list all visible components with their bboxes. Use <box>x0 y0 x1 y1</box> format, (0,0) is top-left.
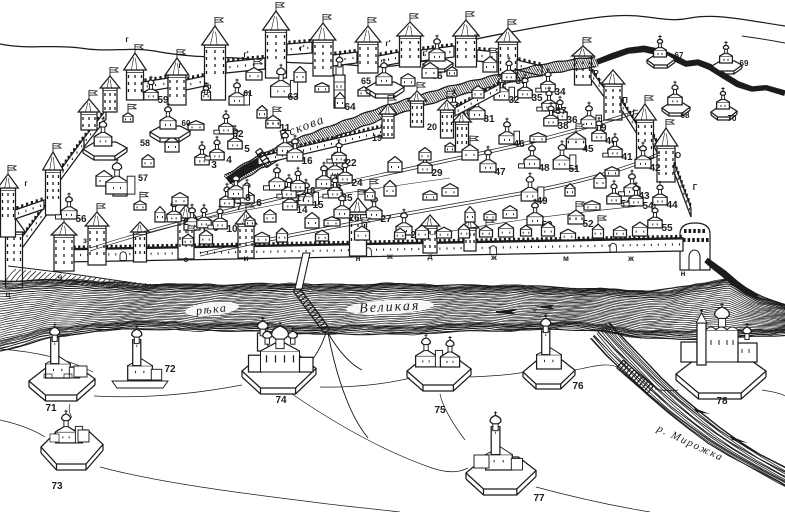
svg-text:П: П <box>622 96 628 105</box>
svg-text:45: 45 <box>582 144 594 155</box>
svg-text:г': г' <box>299 44 304 53</box>
svg-text:67: 67 <box>675 51 684 60</box>
svg-text:55: 55 <box>661 223 673 234</box>
svg-text:14: 14 <box>296 205 308 216</box>
svg-text:76: 76 <box>572 381 584 392</box>
svg-text:52: 52 <box>582 219 594 230</box>
svg-text:20: 20 <box>427 122 437 132</box>
svg-text:3: 3 <box>211 160 217 171</box>
svg-text:48: 48 <box>538 163 550 174</box>
svg-text:24: 24 <box>351 178 363 189</box>
svg-text:47: 47 <box>494 167 506 178</box>
svg-text:с: с <box>502 81 507 90</box>
svg-text:8: 8 <box>245 193 251 204</box>
svg-text:5: 5 <box>244 144 250 155</box>
svg-text:77: 77 <box>533 493 545 504</box>
svg-text:57: 57 <box>138 173 148 183</box>
svg-text:ж: ж <box>386 252 393 261</box>
svg-text:д: д <box>427 252 432 261</box>
svg-text:68: 68 <box>681 111 690 120</box>
svg-text:н: н <box>681 269 686 278</box>
svg-text:4: 4 <box>226 155 232 166</box>
svg-text:г': г' <box>422 49 427 58</box>
svg-text:г': г' <box>385 39 390 48</box>
svg-text:38: 38 <box>557 121 569 132</box>
svg-text:62: 62 <box>232 129 244 140</box>
svg-text:7: 7 <box>236 202 242 213</box>
svg-text:з: з <box>83 236 87 245</box>
svg-text:т: т <box>474 32 478 41</box>
svg-text:70: 70 <box>728 114 737 123</box>
svg-text:18: 18 <box>304 186 316 197</box>
svg-text:29: 29 <box>431 168 443 179</box>
svg-text:37: 37 <box>555 106 567 117</box>
svg-text:78: 78 <box>716 396 728 407</box>
svg-text:44: 44 <box>666 200 678 211</box>
svg-text:г': г' <box>243 50 248 59</box>
svg-text:41: 41 <box>621 152 633 163</box>
svg-text:64: 64 <box>344 102 356 113</box>
svg-text:56: 56 <box>75 214 87 225</box>
svg-text:72: 72 <box>164 364 176 375</box>
svg-text:60: 60 <box>182 119 191 128</box>
svg-text:58: 58 <box>140 138 150 148</box>
svg-text:ж: ж <box>490 253 497 262</box>
svg-text:27: 27 <box>380 214 392 225</box>
svg-text:61: 61 <box>244 89 253 98</box>
svg-text:42: 42 <box>649 163 661 174</box>
svg-text:75: 75 <box>434 405 446 416</box>
svg-text:46: 46 <box>513 139 525 150</box>
svg-text:74: 74 <box>275 395 287 406</box>
svg-text:15: 15 <box>312 200 324 211</box>
svg-text:н: н <box>356 254 361 263</box>
svg-text:69: 69 <box>740 59 749 68</box>
svg-text:Великая: Великая <box>359 298 421 316</box>
svg-text:65: 65 <box>361 76 371 86</box>
svg-text:63: 63 <box>287 92 299 103</box>
svg-text:51: 51 <box>568 164 580 175</box>
svg-text:о: о <box>184 255 189 264</box>
svg-text:19: 19 <box>372 133 382 143</box>
svg-text:6: 6 <box>256 198 262 209</box>
svg-text:и: и <box>244 254 249 263</box>
svg-text:71: 71 <box>45 403 57 414</box>
svg-text:О: О <box>675 151 681 160</box>
svg-text:ж: ж <box>627 254 634 263</box>
svg-text:73: 73 <box>51 481 63 492</box>
svg-text:35: 35 <box>531 93 543 104</box>
svg-text:26: 26 <box>348 213 360 224</box>
svg-text:м: м <box>563 254 569 263</box>
svg-text:31: 31 <box>483 114 495 125</box>
svg-text:16: 16 <box>301 156 313 167</box>
svg-text:Г: Г <box>693 183 698 192</box>
svg-text:10: 10 <box>226 224 238 235</box>
